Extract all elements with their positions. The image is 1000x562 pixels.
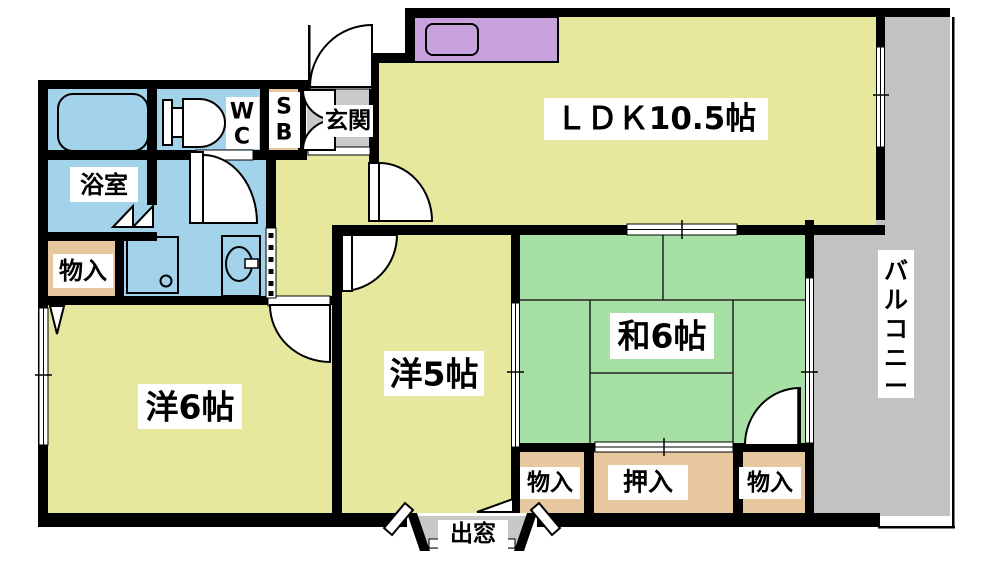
toilet-icon <box>163 99 225 147</box>
room-label-western5: 洋5帖 <box>390 355 479 394</box>
hallway <box>276 155 332 300</box>
room-label-bay-window: 出窓 <box>450 520 496 547</box>
svg-text:ル: ル <box>884 286 908 314</box>
room-label-entrance: 玄関 <box>325 107 371 134</box>
balcony-outer-edge-bottom <box>878 526 955 529</box>
room-label-sb-line2: B <box>276 121 293 146</box>
room-label-storage-top-left: 物入 <box>59 257 107 285</box>
svg-text:コ: コ <box>884 315 908 343</box>
floorplan-svg: ＬＤＫ10.5帖 和6帖 洋5帖 洋6帖 浴室 W C S B 玄関 物入 物入… <box>0 0 1000 562</box>
balcony-floor-upper <box>885 17 950 220</box>
room-label-ldk: ＬＤＫ10.5帖 <box>556 101 757 137</box>
washer-pan-icon <box>127 237 178 293</box>
bathtub-icon <box>58 94 148 151</box>
room-label-storage-bottom-right: 物入 <box>747 469 793 496</box>
room-label-bathroom: 浴室 <box>80 171 128 199</box>
balcony-outer-edge-right <box>952 17 955 528</box>
svg-text:ニ: ニ <box>884 344 908 372</box>
svg-text:バ: バ <box>884 257 908 285</box>
washbasin-icon <box>222 236 260 296</box>
room-label-balcony: バ ル コ ニ ー <box>878 250 914 400</box>
room-label-storage-bottom-left: 物入 <box>527 469 573 496</box>
kitchen-sink-icon <box>426 24 478 55</box>
room-label-japanese: 和6帖 <box>618 317 707 356</box>
room-label-wc-line2: C <box>234 125 250 150</box>
alcove-edge-line <box>308 25 311 88</box>
svg-text:ー: ー <box>884 372 908 400</box>
room-label-western6: 洋6帖 <box>146 388 235 427</box>
room-label-sb-line1: S <box>276 95 292 120</box>
floorplan-canvas: ＬＤＫ10.5帖 和6帖 洋5帖 洋6帖 浴室 W C S B 玄関 物入 物入… <box>0 0 1000 562</box>
room-label-wc-line1: W <box>230 100 254 125</box>
accordion-door-washroom <box>266 228 276 298</box>
room-label-oshiire: 押入 <box>623 468 673 497</box>
